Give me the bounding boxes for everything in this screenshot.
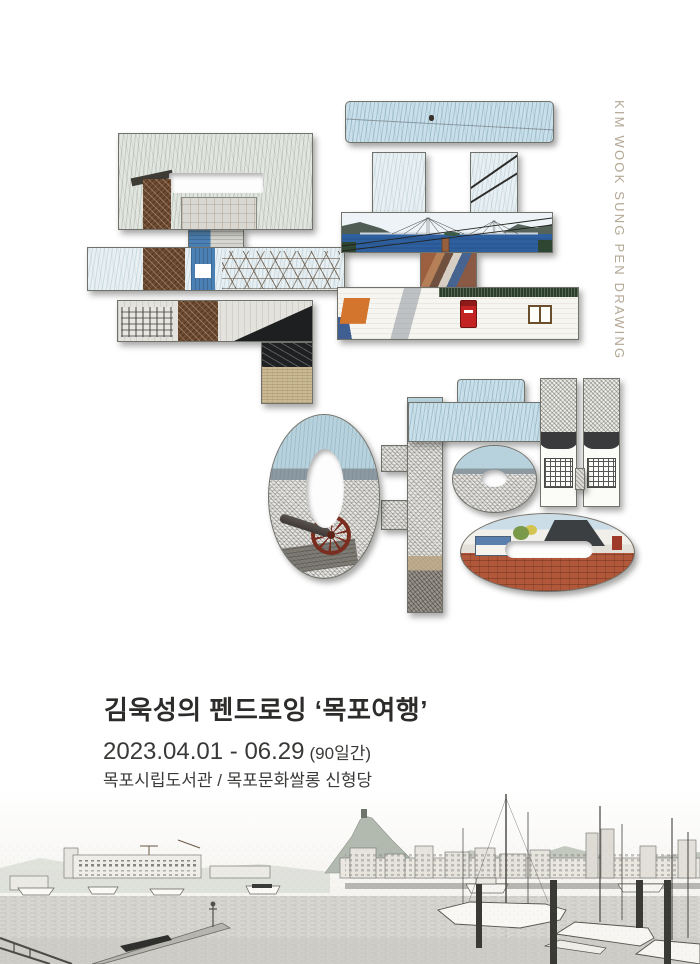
date-range: 2023.04.01 - 06.29 xyxy=(103,738,305,765)
yeo-ring-block xyxy=(268,414,380,579)
harbor-crane-lines xyxy=(222,251,340,289)
po-crossbar xyxy=(341,212,553,253)
letter-cutout xyxy=(306,449,344,528)
red-shrine-drawing xyxy=(612,536,622,550)
mok-top-block xyxy=(118,133,313,230)
po-village-bar xyxy=(337,287,579,340)
mok-connector-block xyxy=(188,228,244,249)
harbor-pen-drawing xyxy=(0,788,700,964)
artist-credit-vertical: KIM WOOK SUNG PEN DRAWING xyxy=(612,100,627,360)
haeng-ae-left-bar xyxy=(540,378,577,507)
tree-drawing xyxy=(513,526,529,540)
haeng-ae-crossbar xyxy=(575,468,585,490)
exhibition-dates: 2023.04.01 - 06.29(90일간) xyxy=(103,738,371,766)
letter-cutout xyxy=(505,541,593,558)
tower-roof-drawing xyxy=(131,170,174,187)
mok-crossbar-block xyxy=(87,247,345,291)
mok-lower-block xyxy=(117,300,313,342)
po-top-bar xyxy=(345,101,554,143)
po-stem-block xyxy=(420,252,477,288)
yeo-arm-lower xyxy=(381,500,408,530)
cable-bridge-drawing xyxy=(342,213,552,252)
letter-cutout xyxy=(481,470,507,487)
haeng-horizontal-stroke xyxy=(408,402,542,442)
hanok-lattice-drawing xyxy=(587,458,616,488)
haeng-ring-block xyxy=(452,445,537,513)
yeo-arm-upper xyxy=(381,445,408,472)
window-frame-drawing xyxy=(528,305,552,324)
exhibition-title: 김욱성의 펜드로잉 ‘목포여행’ xyxy=(104,690,428,727)
letter-cutout xyxy=(169,173,263,193)
po-left-leg xyxy=(372,152,426,213)
building-windows-drawing xyxy=(121,307,173,337)
hanok-lattice-drawing xyxy=(544,458,573,488)
haeng-oval-block xyxy=(460,513,635,592)
red-postbox-drawing xyxy=(460,300,477,328)
mok-descender-block xyxy=(261,342,313,404)
haeng-ae-right-bar xyxy=(583,378,620,507)
exhibition-poster: KIM WOOK SUNG PEN DRAWING xyxy=(0,0,700,964)
duration-label: (90일간) xyxy=(310,744,372,763)
po-right-leg xyxy=(470,152,518,213)
